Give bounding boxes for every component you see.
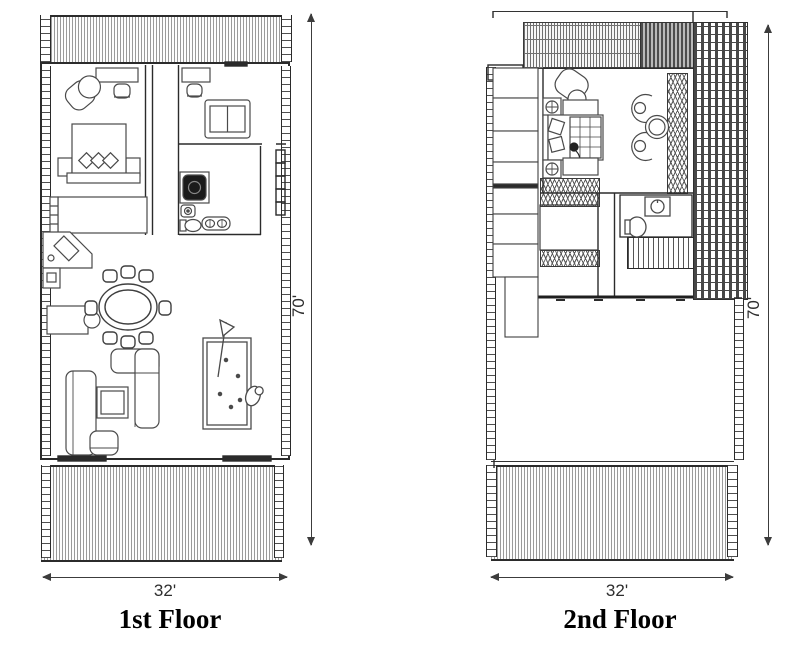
floor-plan-sheet: 32' 70' 1st Floor 32' 70' 2nd Floor <box>0 0 807 660</box>
arrow-left-icon <box>42 573 51 581</box>
arrow-left-icon <box>490 573 499 581</box>
dining-set-icon <box>85 266 171 348</box>
blanket-grid <box>570 117 601 158</box>
desk-icon <box>96 68 138 82</box>
plan2-title: 2nd Floor <box>525 604 715 635</box>
plan2-width-label: 32' <box>592 581 642 601</box>
arrow-down-icon <box>307 537 315 546</box>
toilet-icon <box>180 220 201 232</box>
bed-icon <box>58 124 140 183</box>
pool-table-icon <box>203 338 251 429</box>
plan2-height-dimension-line <box>768 25 769 545</box>
plan1-width-dimension-line <box>43 577 287 578</box>
round-table-icon <box>646 116 669 139</box>
coffee-table-icon <box>97 387 128 418</box>
plan1-width-label: 32' <box>140 581 190 601</box>
plan1-title: 1st Floor <box>75 604 265 635</box>
arrow-right-icon <box>279 573 288 581</box>
plan1-height-dimension-line <box>311 14 312 545</box>
washbasin-icon <box>645 197 670 216</box>
double-sink-icon <box>202 217 230 230</box>
appliance-icon <box>43 268 60 288</box>
plan2-width-dimension-line <box>491 577 733 578</box>
bidet-icon <box>181 205 195 217</box>
arrow-down-icon <box>764 537 772 546</box>
plan2-drawing <box>486 8 771 560</box>
plan2-height-label: 70' <box>744 283 764 333</box>
arrow-up-icon <box>307 13 315 22</box>
shower-icon <box>180 172 209 203</box>
wardrobe-box-icon <box>540 205 598 250</box>
office-chair-icon <box>187 84 202 97</box>
closet-cabinets-icon <box>493 68 538 337</box>
corner-kitchen-sink-icon <box>43 232 92 268</box>
armchair-icon <box>632 133 652 161</box>
office-chair-icon <box>114 84 130 98</box>
arrow-right-icon <box>725 573 734 581</box>
plan1-drawing <box>40 10 292 560</box>
closet-icon <box>50 197 147 233</box>
loveseat-icon <box>205 100 250 138</box>
bench-icon <box>563 158 598 175</box>
arrow-up-icon <box>764 24 772 33</box>
toilet-icon <box>625 217 646 237</box>
desk-icon <box>182 68 210 82</box>
nightstand-icon <box>543 98 561 116</box>
nightstand-icon <box>543 160 561 178</box>
plan1-height-label: 70' <box>289 281 309 331</box>
